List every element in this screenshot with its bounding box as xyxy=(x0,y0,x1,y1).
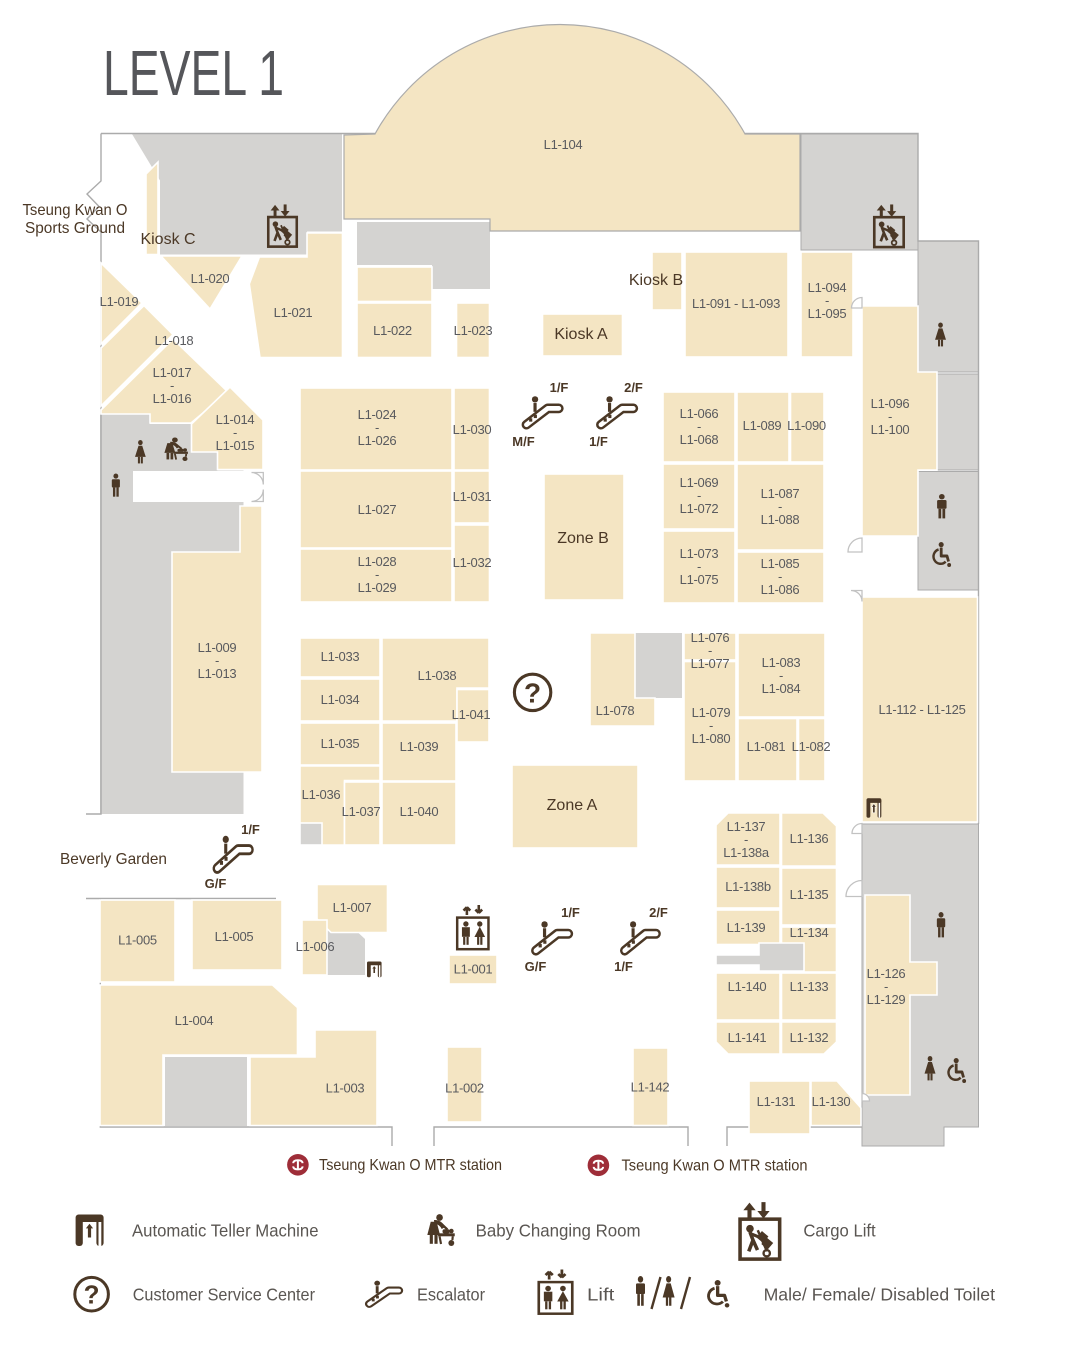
svg-text:L1-104: L1-104 xyxy=(544,137,583,152)
svg-text:L1-139: L1-139 xyxy=(727,920,766,935)
svg-text:L1-041: L1-041 xyxy=(452,707,491,722)
svg-text:1/F: 1/F xyxy=(561,905,580,920)
svg-text:L1-112 - L1-125: L1-112 - L1-125 xyxy=(878,702,965,717)
svg-text:L1-036: L1-036 xyxy=(302,787,341,802)
svg-text:L1-040: L1-040 xyxy=(400,804,439,819)
svg-text:L1-075: L1-075 xyxy=(680,572,719,587)
svg-text:L1-015: L1-015 xyxy=(216,438,255,453)
svg-text:G/F: G/F xyxy=(525,959,547,974)
svg-text:L1-007: L1-007 xyxy=(333,900,372,915)
svg-text:1/F: 1/F xyxy=(614,959,633,974)
svg-text:Tseung Kwan O MTR station: Tseung Kwan O MTR station xyxy=(622,1158,808,1175)
svg-text:Kiosk B: Kiosk B xyxy=(629,272,683,289)
svg-text:Tseung Kwan O: Tseung Kwan O xyxy=(23,202,128,219)
svg-text:Zone B: Zone B xyxy=(557,530,609,547)
svg-text:L1-023: L1-023 xyxy=(454,323,493,338)
svg-text:L1-005: L1-005 xyxy=(215,929,254,944)
svg-text:G/F: G/F xyxy=(205,876,227,891)
svg-text:L1-130: L1-130 xyxy=(812,1094,851,1109)
svg-text:L1-029: L1-029 xyxy=(358,580,397,595)
svg-text:M/F: M/F xyxy=(512,434,534,449)
svg-text:Baby Changing Room: Baby Changing Room xyxy=(476,1221,641,1241)
svg-text:Automatic Teller Machine: Automatic Teller Machine xyxy=(132,1221,319,1241)
svg-text:L1-084: L1-084 xyxy=(762,681,801,696)
svg-text:L1-141: L1-141 xyxy=(728,1030,767,1045)
svg-text:Male/ Female/ Disabled Toilet: Male/ Female/ Disabled Toilet xyxy=(764,1285,996,1305)
svg-text:L1-033: L1-033 xyxy=(321,649,360,664)
svg-text:L1-140: L1-140 xyxy=(728,979,767,994)
svg-text:L1-082: L1-082 xyxy=(792,739,831,754)
svg-text:Zone A: Zone A xyxy=(547,797,598,814)
svg-text:L1-088: L1-088 xyxy=(761,512,800,527)
svg-text:Beverly Garden: Beverly Garden xyxy=(60,851,167,868)
svg-text:L1-134: L1-134 xyxy=(790,925,829,940)
svg-text:L1-090: L1-090 xyxy=(787,418,826,433)
svg-text:Escalator: Escalator xyxy=(417,1285,485,1305)
svg-text:L1-019: L1-019 xyxy=(100,294,139,309)
svg-text:L1-034: L1-034 xyxy=(321,692,360,707)
svg-text:L1-078: L1-078 xyxy=(596,703,635,718)
svg-text:L1-086: L1-086 xyxy=(761,582,800,597)
svg-text:L1-091 - L1-093: L1-091 - L1-093 xyxy=(692,296,780,311)
svg-text:Kiosk C: Kiosk C xyxy=(140,231,195,248)
svg-text:?: ? xyxy=(524,678,541,709)
svg-text:L1-020: L1-020 xyxy=(191,271,230,286)
svg-text:L1-135: L1-135 xyxy=(790,887,829,902)
svg-text:2/F: 2/F xyxy=(649,905,668,920)
svg-text:L1-080: L1-080 xyxy=(692,731,731,746)
svg-text:L1-068: L1-068 xyxy=(680,432,719,447)
svg-text:L1-039: L1-039 xyxy=(400,739,439,754)
svg-text:1/F: 1/F xyxy=(550,380,569,395)
svg-text:L1-035: L1-035 xyxy=(321,736,360,751)
svg-text:L1-026: L1-026 xyxy=(358,433,397,448)
svg-text:1/F: 1/F xyxy=(241,822,260,837)
svg-text:L1-018: L1-018 xyxy=(155,333,194,348)
svg-text:L1-022: L1-022 xyxy=(373,323,412,338)
svg-text:L1-100: L1-100 xyxy=(871,422,910,437)
svg-text:L1-129: L1-129 xyxy=(867,992,906,1007)
svg-text:L1-016: L1-016 xyxy=(153,391,192,406)
svg-text:L1-005: L1-005 xyxy=(118,933,157,948)
svg-text:Sports Ground: Sports Ground xyxy=(25,220,125,237)
svg-text:L1-032: L1-032 xyxy=(453,555,492,570)
svg-text:L1-031: L1-031 xyxy=(453,489,492,504)
svg-text:L1-136: L1-136 xyxy=(790,831,829,846)
svg-text:1/F: 1/F xyxy=(589,434,608,449)
svg-text:L1-004: L1-004 xyxy=(175,1013,214,1028)
svg-text:Customer Service Center: Customer Service Center xyxy=(133,1285,315,1305)
svg-text:Lift: Lift xyxy=(587,1285,615,1305)
svg-text:L1-030: L1-030 xyxy=(453,422,492,437)
svg-text:L1-003: L1-003 xyxy=(326,1081,365,1096)
svg-text:L1-132: L1-132 xyxy=(790,1030,829,1045)
svg-text:L1-037: L1-037 xyxy=(342,804,381,819)
svg-text:L1-081: L1-081 xyxy=(747,739,786,754)
svg-text:L1-072: L1-072 xyxy=(680,501,719,516)
svg-text:L1-027: L1-027 xyxy=(358,502,397,517)
svg-text:L1-138a: L1-138a xyxy=(723,845,770,860)
svg-text:L1-001: L1-001 xyxy=(454,962,493,977)
svg-text:Tseung Kwan O MTR station: Tseung Kwan O MTR station xyxy=(319,1157,502,1174)
svg-text:L1-131: L1-131 xyxy=(757,1094,796,1109)
svg-text:Kiosk A: Kiosk A xyxy=(554,326,608,343)
svg-text:L1-138b: L1-138b xyxy=(725,879,771,894)
svg-text:L1-038: L1-038 xyxy=(418,668,457,683)
svg-text:L1-006: L1-006 xyxy=(296,939,335,954)
svg-text:L1-021: L1-021 xyxy=(274,305,313,320)
svg-text:L1-133: L1-133 xyxy=(790,979,829,994)
svg-text:L1-089: L1-089 xyxy=(743,418,782,433)
svg-text:LEVEL 1: LEVEL 1 xyxy=(103,37,284,109)
svg-text:L1-095: L1-095 xyxy=(808,306,847,321)
svg-text:L1-002: L1-002 xyxy=(445,1081,484,1096)
svg-text:?: ? xyxy=(84,1280,100,1310)
svg-text:L1-077: L1-077 xyxy=(691,656,730,671)
svg-text:2/F: 2/F xyxy=(624,380,643,395)
svg-text:L1-142: L1-142 xyxy=(631,1080,670,1095)
svg-text:Cargo Lift: Cargo Lift xyxy=(803,1221,875,1241)
svg-text:L1-013: L1-013 xyxy=(198,666,237,681)
